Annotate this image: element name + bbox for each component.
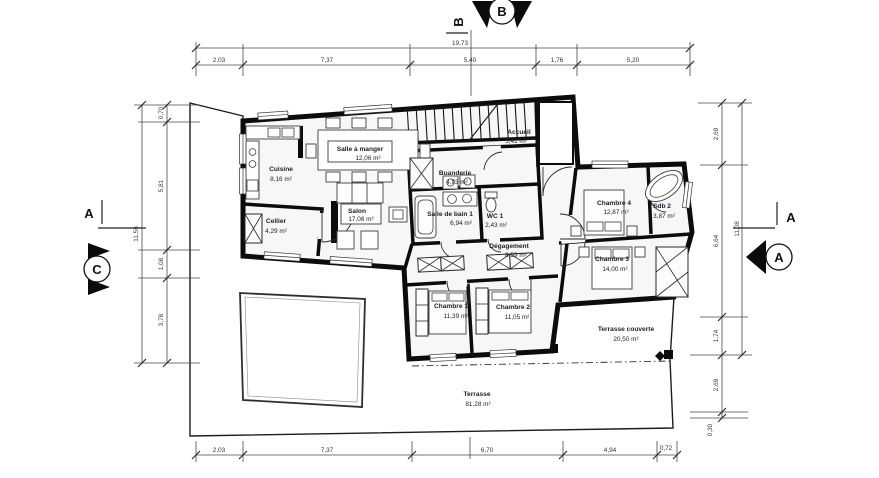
room-area-wc1: 2,43 m² — [485, 222, 507, 229]
section-a-circle-letter: A — [774, 250, 784, 265]
room-area-chambre4: 12,87 m² — [603, 209, 628, 216]
dim-top-seg4: 5,20 — [627, 57, 640, 64]
dim-right-seg1: 6,64 — [713, 234, 720, 247]
room-label-chambre1: Chambre 1 — [434, 303, 468, 310]
room-label-cellier: Cellier — [266, 218, 287, 225]
pool — [240, 293, 365, 407]
cellier-door-gap — [318, 213, 325, 239]
boundary-diamond-marker — [655, 351, 665, 361]
room-area-chambre3: 14,00 m² — [602, 266, 627, 273]
dim-right-seg2: 1,74 — [713, 329, 720, 342]
room-label-salle-a-manger: Salle à manger — [337, 146, 384, 153]
dim-top-overall: 19,73 — [452, 40, 468, 47]
dim-bottom-seg4: 0,72 — [660, 445, 673, 452]
section-c-circle-letter: C — [92, 262, 102, 277]
chambre2-furniture — [476, 288, 531, 334]
sdb1-door-gap — [440, 238, 456, 247]
room-area-cuisine: 8,16 m² — [270, 176, 292, 183]
dim-left-seg1: 5,81 — [158, 179, 165, 192]
room-label-buanderie: Buanderie — [439, 170, 472, 177]
section-b-circle-letter: B — [497, 4, 506, 19]
dim-top-seg0: 2,03 — [213, 57, 226, 64]
room-label-cuisine: Cuisine — [269, 166, 293, 173]
room-label-sdb2: Sdb 2 — [653, 203, 671, 210]
dim-right-seg4: 0,30 — [707, 423, 714, 436]
room-label-degagement: Dégagement — [489, 243, 529, 250]
dim-left-seg0: 0,70 — [158, 106, 165, 119]
dim-left-seg3: 3,78 — [158, 313, 165, 326]
dim-right-overall: 11,08 — [734, 221, 741, 237]
room-area-sdb1: 6,94 m² — [450, 220, 472, 227]
floor-plan-canvas: Cuisine 8,16 m² Salle à manger 12,06 m² … — [0, 0, 879, 478]
room-label-salon: Salon — [348, 208, 366, 215]
room-label-chambre2: Chambre 2 — [496, 304, 530, 311]
dimensions-top: 19,73 2,03 7,37 5,40 1,76 5,20 — [192, 40, 694, 76]
chambre2-door-gap — [508, 273, 529, 284]
dim-bottom-seg1: 7,37 — [321, 447, 334, 454]
dim-top-seg3: 1,76 — [551, 57, 564, 64]
room-label-wc1: WC 1 — [487, 213, 504, 220]
section-b-letter: B — [451, 17, 466, 26]
buanderie-door-gap — [483, 146, 501, 156]
room-area-sdb2: 3,87 m² — [653, 213, 675, 220]
room-label-sdb1: Salle de bain 1 — [427, 211, 473, 218]
entry-closet — [539, 102, 573, 164]
room-area-buanderie: 4,93 m² — [446, 179, 468, 186]
room-area-cellier: 4,29 m² — [265, 228, 287, 235]
section-a-arrow — [746, 240, 766, 274]
floor-plan-page: Cuisine 8,16 m² Salle à manger 12,06 m² … — [0, 0, 879, 478]
dim-bottom-seg3: 4,94 — [604, 447, 617, 454]
room-label-terrasse: Terrasse — [463, 391, 490, 398]
dimensions-bottom: 2,03 7,37 6,70 4,94 0,72 — [192, 437, 681, 462]
room-area-salle-a-manger: 12,06 m² — [355, 155, 380, 162]
dim-left-seg2: 1,08 — [158, 257, 165, 270]
room-label-chambre3: Chambre 3 — [595, 256, 629, 263]
room-area-chambre2: 11,05 m² — [505, 314, 530, 321]
dim-right-seg0: 2,69 — [713, 127, 720, 140]
dim-bottom-seg2: 6,70 — [481, 447, 494, 454]
dim-top-seg2: 5,40 — [464, 57, 477, 64]
section-a-left-letter: A — [84, 206, 94, 221]
dim-top-seg1: 7,37 — [321, 57, 334, 64]
room-label-chambre4: Chambre 4 — [597, 200, 631, 207]
terrace-post — [664, 350, 673, 359]
room-area-terrasse: 81,28 m² — [465, 401, 490, 408]
room-area-chambre1: 11,39 m² — [444, 313, 469, 320]
dim-bottom-seg0: 2,03 — [213, 447, 226, 454]
room-label-terrasse-couverte: Terrasse couverte — [598, 326, 655, 333]
room-label-accueil: Accueil — [507, 129, 531, 136]
room-area-degagement: 8,59 m² — [505, 252, 527, 259]
room-area-salon: 17,08 m² — [348, 216, 373, 223]
section-a-right-letter: A — [786, 210, 796, 225]
room-area-terrasse-couverte: 20,50 m² — [613, 336, 638, 343]
boundary-dashed-line — [412, 361, 672, 366]
room-area-accueil: 5,41 m² — [505, 138, 527, 145]
dim-right-seg3: 2,69 — [713, 378, 720, 391]
cellier-shelf — [245, 214, 262, 243]
chambre1-door-gap — [446, 276, 467, 287]
dimensions-right: 2,69 6,64 1,74 2,69 0,30 11,08 — [690, 99, 752, 436]
